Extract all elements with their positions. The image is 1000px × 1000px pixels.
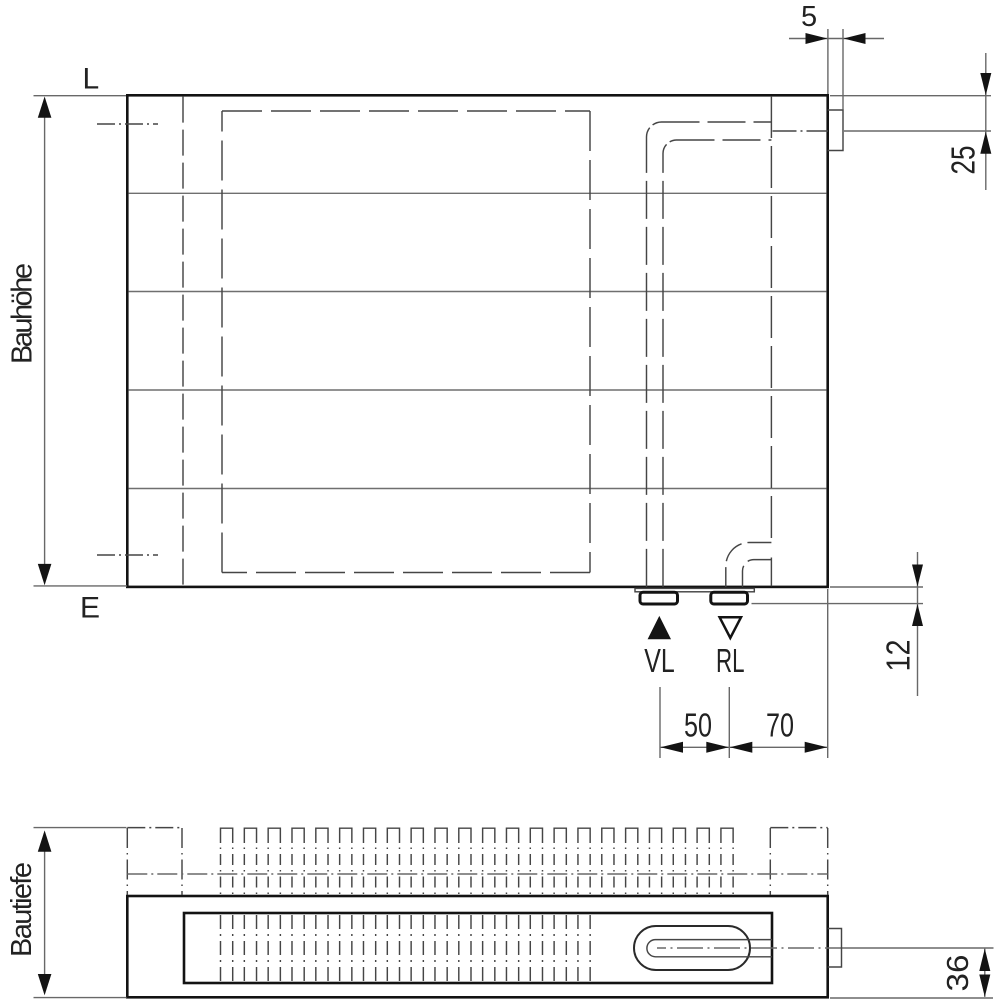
svg-text:50: 50 xyxy=(684,706,712,743)
svg-text:36: 36 xyxy=(940,955,975,992)
svg-text:12: 12 xyxy=(880,640,917,672)
svg-text:Bautiefe: Bautiefe xyxy=(6,862,38,957)
svg-text:L: L xyxy=(83,63,100,96)
svg-text:VL: VL xyxy=(644,642,675,679)
svg-text:70: 70 xyxy=(766,706,794,743)
svg-text:5: 5 xyxy=(801,1,817,33)
svg-text:Bauhöhe: Bauhöhe xyxy=(7,263,39,364)
svg-text:RL: RL xyxy=(716,642,745,679)
svg-text:E: E xyxy=(80,592,100,625)
svg-text:25: 25 xyxy=(945,146,982,175)
